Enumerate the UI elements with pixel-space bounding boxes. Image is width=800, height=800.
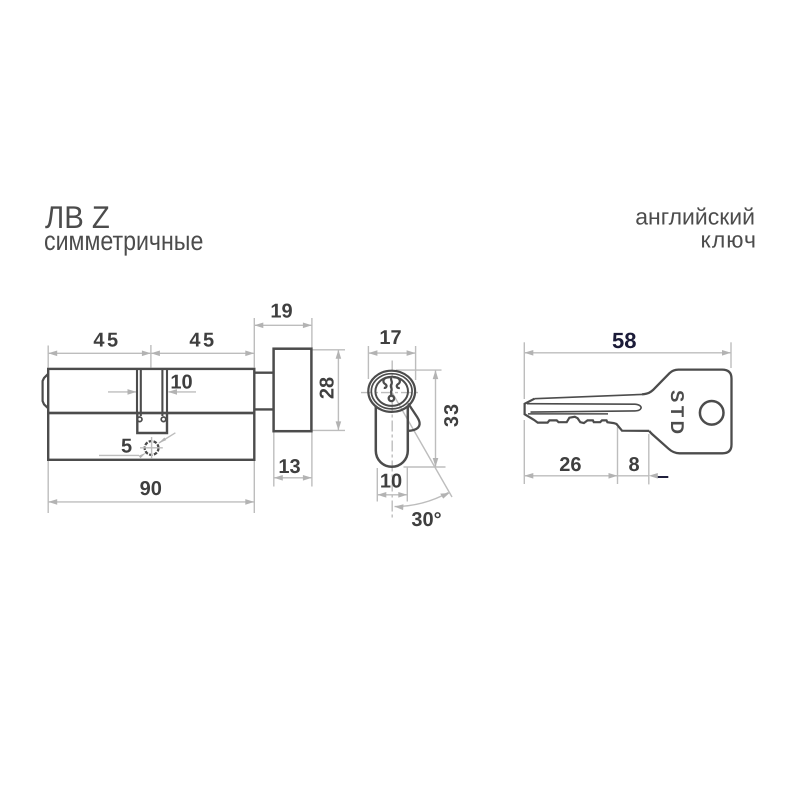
svg-text:90: 90 [140, 478, 162, 500]
svg-text:английский: английский [635, 203, 755, 229]
svg-text:33: 33 [441, 403, 463, 427]
svg-text:45: 45 [93, 329, 120, 351]
svg-text:ключ: ключ [701, 227, 757, 253]
svg-text:10: 10 [380, 471, 402, 493]
svg-text:10: 10 [170, 372, 192, 394]
svg-text:45: 45 [189, 329, 216, 351]
svg-text:19: 19 [270, 301, 292, 323]
svg-text:13: 13 [278, 456, 300, 478]
svg-text:58: 58 [612, 328, 636, 353]
svg-text:STD: STD [667, 390, 688, 438]
svg-text:5: 5 [121, 435, 132, 457]
svg-text:26: 26 [559, 454, 581, 476]
svg-text:17: 17 [379, 327, 401, 349]
svg-text:8: 8 [628, 454, 639, 476]
svg-text:симметричные: симметричные [44, 226, 203, 256]
svg-text:30°: 30° [411, 509, 441, 531]
svg-text:28: 28 [317, 377, 339, 399]
